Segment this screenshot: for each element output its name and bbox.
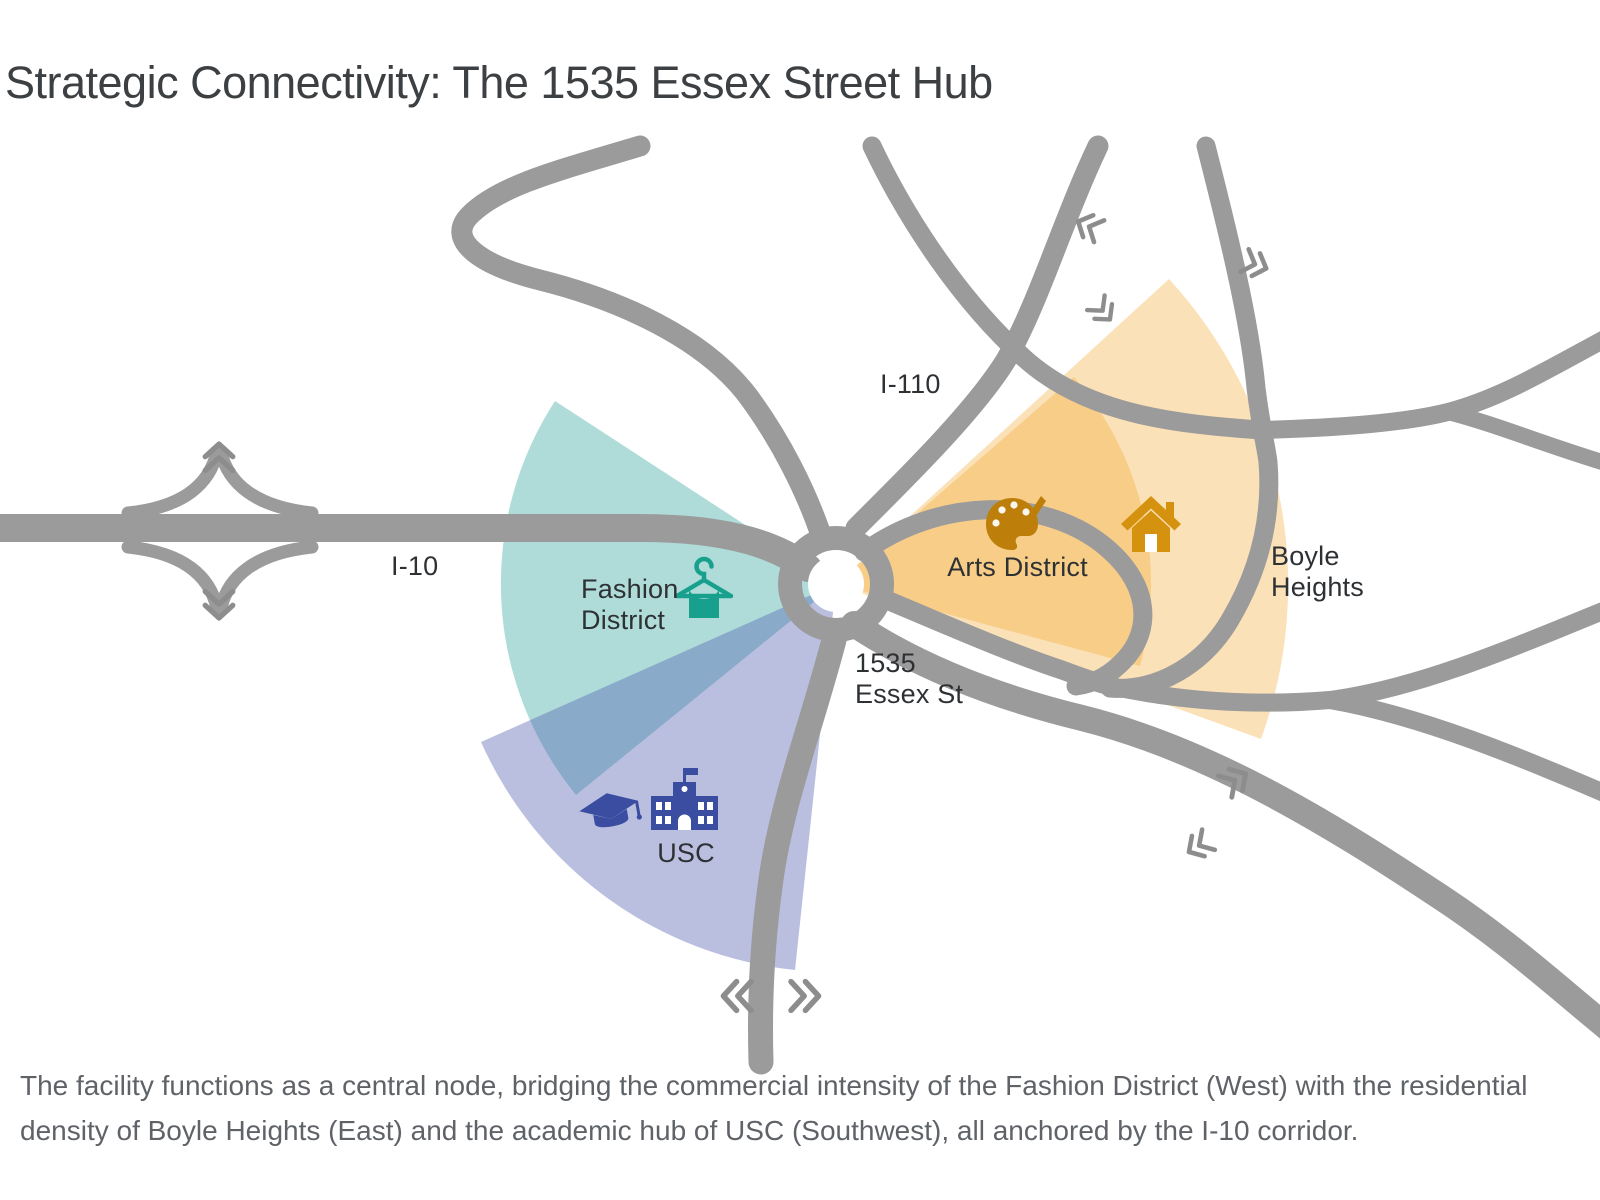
district-label-boyle-line1: Boyle xyxy=(1271,541,1364,572)
road-network xyxy=(0,146,1600,1062)
hub-center xyxy=(808,556,864,612)
chevron-southeast-icon xyxy=(1087,295,1119,326)
hub-label-line2: Essex St xyxy=(855,679,963,710)
hub-label-line1: 1535 xyxy=(855,648,963,679)
chevron-right-icon xyxy=(791,982,819,1011)
road-ramp xyxy=(221,547,312,608)
caption-text: The facility functions as a central node… xyxy=(20,1063,1548,1153)
district-label-fashion-line1: Fashion xyxy=(581,574,678,605)
road-ramp xyxy=(221,452,312,513)
road-southeast-branch-lower xyxy=(1330,700,1600,802)
road-east-lower xyxy=(1448,412,1600,468)
infographic-page: Strategic Connectivity: The 1535 Essex S… xyxy=(0,0,1600,1200)
chevron-southwest-icon xyxy=(1183,830,1215,863)
chevron-left-icon xyxy=(723,982,751,1011)
district-label-arts: Arts District xyxy=(930,552,1105,583)
hub-label: 1535 Essex St xyxy=(855,648,963,710)
road-ramp xyxy=(128,547,217,608)
road-east-upper xyxy=(1260,328,1600,430)
district-label-boyle-line2: Heights xyxy=(1271,572,1364,603)
road-label-i10: I-10 xyxy=(391,551,438,582)
district-label-fashion: Fashion District xyxy=(581,574,678,636)
district-label-boyle: Boyle Heights xyxy=(1271,541,1364,603)
district-label-usc: USC xyxy=(650,838,722,869)
road-southeast-branch-upper xyxy=(1330,602,1600,700)
district-label-fashion-line2: District xyxy=(581,605,678,636)
road-label-i110: I-110 xyxy=(880,369,941,400)
road-ramp xyxy=(128,452,217,513)
